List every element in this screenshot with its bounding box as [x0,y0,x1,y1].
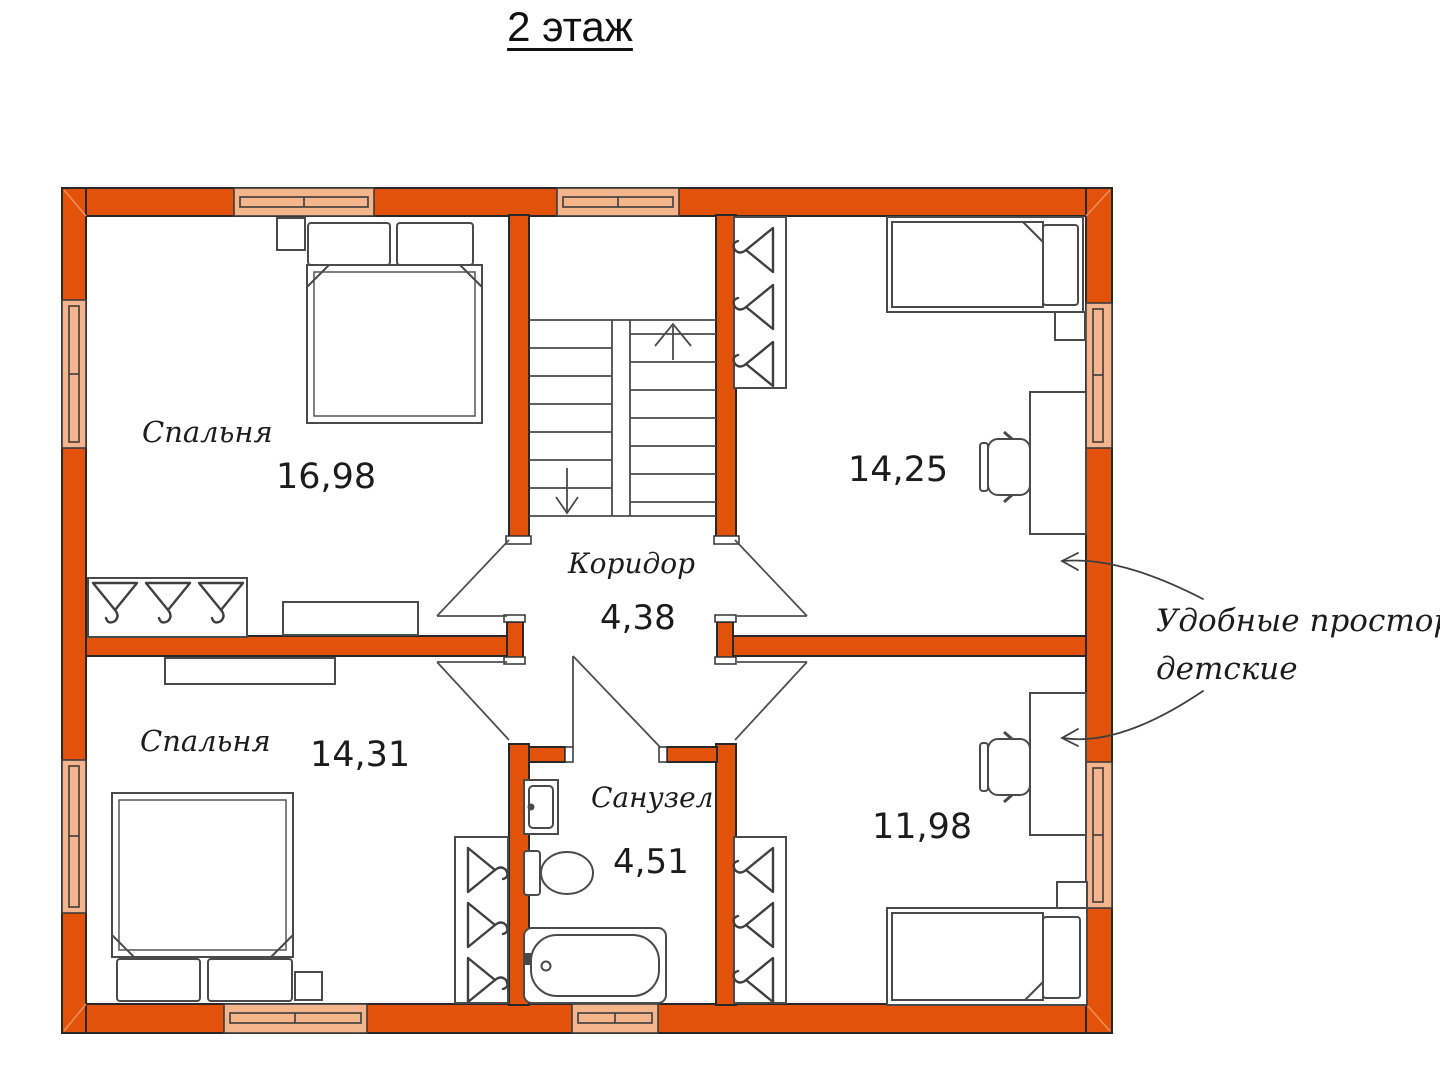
single-bed [887,908,1087,1005]
wardrobe [734,837,786,1003]
wardrobe [734,217,786,388]
room-label-bedroom-top-left: Спальня [142,418,273,447]
wall-post-right [717,622,733,658]
stairs-up-arrow-icon [655,324,691,360]
window-left-bottom [62,760,86,913]
room-area-nursery-bottom-right: 11,98 [872,810,972,845]
pillow [308,223,390,265]
nightstand [1055,312,1085,340]
staircase [529,320,716,516]
pillow [208,959,292,1001]
door-nursery-top-right [735,540,807,616]
double-bed [112,793,293,957]
jamb-post-left-top [504,615,525,622]
room-area-bathroom: 4,51 [613,845,689,879]
wall-mid-right [733,636,1086,656]
stairs-down-arrow-icon [556,468,578,513]
single-bed [887,217,1083,312]
jamb-bath-door-left [565,747,573,762]
door-bedroom-bottom-left [437,662,509,740]
window-top-stairs [557,188,679,216]
window-bathroom [572,1004,658,1033]
pillow [397,223,473,265]
wall-bath-door-stub-left [529,747,565,762]
room-area-bedroom-top-left: 16,98 [276,460,376,495]
annotation-line-1: Удобные просторные [1156,606,1440,637]
room-label-bedroom-bottom-left: Спальня [140,727,271,756]
arrow-to-top-nursery [1062,553,1203,599]
wall-bath-door-stub-right [667,747,717,762]
nightstand [295,972,322,1000]
double-bed [307,265,482,423]
jamb-post-right-bottom [715,657,736,664]
bathtub-icon [524,928,666,1003]
window-left-top [62,300,86,448]
furniture-bedroom-bottom-left [112,658,508,1003]
desk [1030,392,1086,534]
window-bottom-bedroom [224,1004,367,1033]
door-nursery-bottom-right [735,662,807,740]
jamb-post-right-top [715,615,736,622]
wall-post-left [507,622,523,658]
desk [1030,693,1086,835]
chair [980,432,1030,502]
pillow [117,959,200,1001]
nightstand [277,218,305,250]
pillow [1043,917,1080,998]
sink-icon [524,780,558,834]
floor-plan-page: { "title": "2 этаж", "colors": { "wall":… [0,0,1440,1080]
toilet-icon [524,851,593,895]
dresser [165,658,335,684]
jamb-bath-door-right [659,747,667,762]
room-area-bedroom-bottom-left: 14,31 [310,738,410,773]
floor-plan-drawing [0,0,1440,1080]
jamb-post-left-bottom [504,657,525,664]
nightstand [1057,882,1087,908]
room-label-corridor: Коридор [568,550,695,578]
door-bedroom-top-left [437,540,509,616]
wall-stairs-left [509,215,529,538]
window-right-bottom [1086,762,1112,908]
dresser [283,602,418,635]
jamb-stairs-left-end [506,536,531,544]
window-top-bedroom [234,188,374,216]
door-bathroom [573,656,660,747]
room-area-corridor: 4,38 [600,601,676,635]
wardrobe [455,837,508,1003]
wall-mid-left [86,636,507,656]
annotation-line-2: детские [1156,654,1298,685]
furniture-nursery-bottom-right [734,693,1087,1005]
page-title: 2 этаж [420,6,720,48]
wardrobe [88,578,247,637]
window-right-top [1086,303,1112,448]
room-area-nursery-top-right: 14,25 [848,453,948,488]
room-label-bathroom: Санузел [591,784,713,812]
chair [980,732,1030,802]
pillow [1043,225,1078,305]
